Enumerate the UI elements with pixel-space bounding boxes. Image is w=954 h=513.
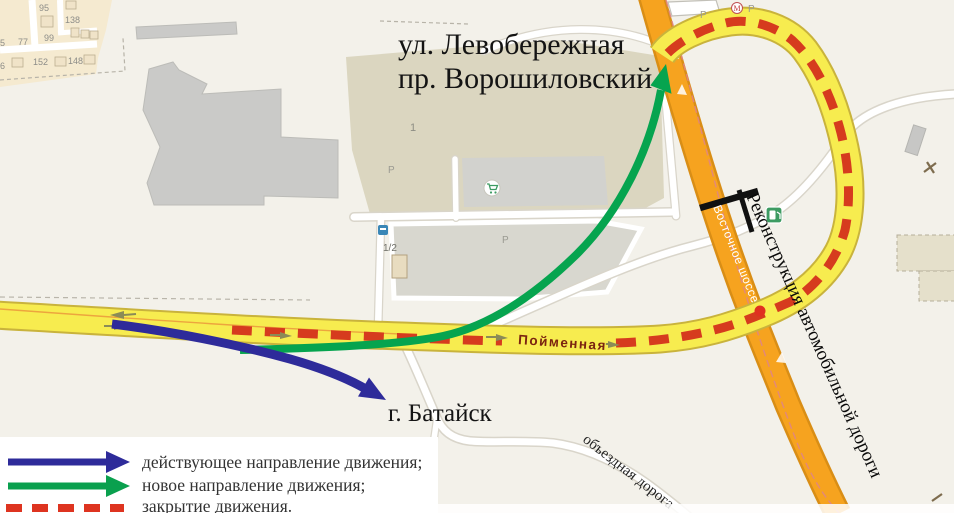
retail-parcel bbox=[462, 156, 608, 207]
metro-icon[interactable]: М bbox=[732, 3, 743, 14]
house-number: 77 bbox=[18, 37, 28, 47]
service-road-h bbox=[354, 212, 672, 217]
parking-label: P bbox=[388, 165, 395, 176]
building-half-block bbox=[392, 255, 407, 278]
parking-lot bbox=[391, 221, 641, 299]
admin-boundary-dashed-left bbox=[0, 297, 310, 300]
street bbox=[32, 0, 35, 47]
road-scheme-map[interactable]: 95 138 77 99 152 148 5 6 bbox=[0, 0, 954, 513]
house-number: 6 bbox=[0, 61, 5, 71]
road-name-obyezdnaya: объездная дорога bbox=[580, 432, 678, 513]
parking-label: P bbox=[502, 235, 509, 246]
street-title-line1: ул. Левобережная bbox=[398, 28, 625, 61]
field-parcel-2 bbox=[919, 271, 954, 301]
house-number: 152 bbox=[33, 57, 48, 67]
legend-label-closure: закрытие движения. bbox=[142, 496, 292, 513]
house-number: 5 bbox=[0, 38, 5, 48]
industrial-building bbox=[143, 62, 338, 205]
legend-label-new: новое направление движения; bbox=[142, 475, 365, 495]
field-parcel-1 bbox=[897, 235, 954, 271]
house-number: 138 bbox=[65, 15, 80, 25]
parking-label: P bbox=[748, 4, 755, 15]
city-label: г. Батайск bbox=[388, 400, 493, 427]
parking-label: P bbox=[700, 10, 707, 21]
house-number: 148 bbox=[68, 56, 83, 66]
street-title-line2: пр. Ворошиловский bbox=[398, 62, 652, 95]
small-building-east bbox=[905, 125, 926, 156]
legend-label-current: действующее направление движения; bbox=[142, 452, 422, 472]
map-canvas[interactable]: 95 138 77 99 152 148 5 6 bbox=[0, 0, 954, 513]
admin-boundary-dashed-top bbox=[380, 21, 468, 24]
sports-icon bbox=[924, 162, 936, 173]
sports-icon-2 bbox=[932, 494, 942, 501]
bus-stop-icon[interactable] bbox=[378, 225, 388, 235]
parcel-one-label: 1 bbox=[410, 122, 416, 134]
street bbox=[60, 0, 61, 31]
supermarket-cart-icon[interactable] bbox=[484, 180, 500, 196]
service-road-v2 bbox=[455, 159, 456, 218]
metro-label: М bbox=[733, 4, 740, 13]
closure-point-marker bbox=[755, 306, 766, 317]
house-number: 95 bbox=[39, 3, 49, 13]
house-number: 99 bbox=[44, 33, 54, 43]
parcel-half-label: 1/2 bbox=[383, 243, 397, 254]
industrial-building-annex bbox=[136, 22, 237, 39]
